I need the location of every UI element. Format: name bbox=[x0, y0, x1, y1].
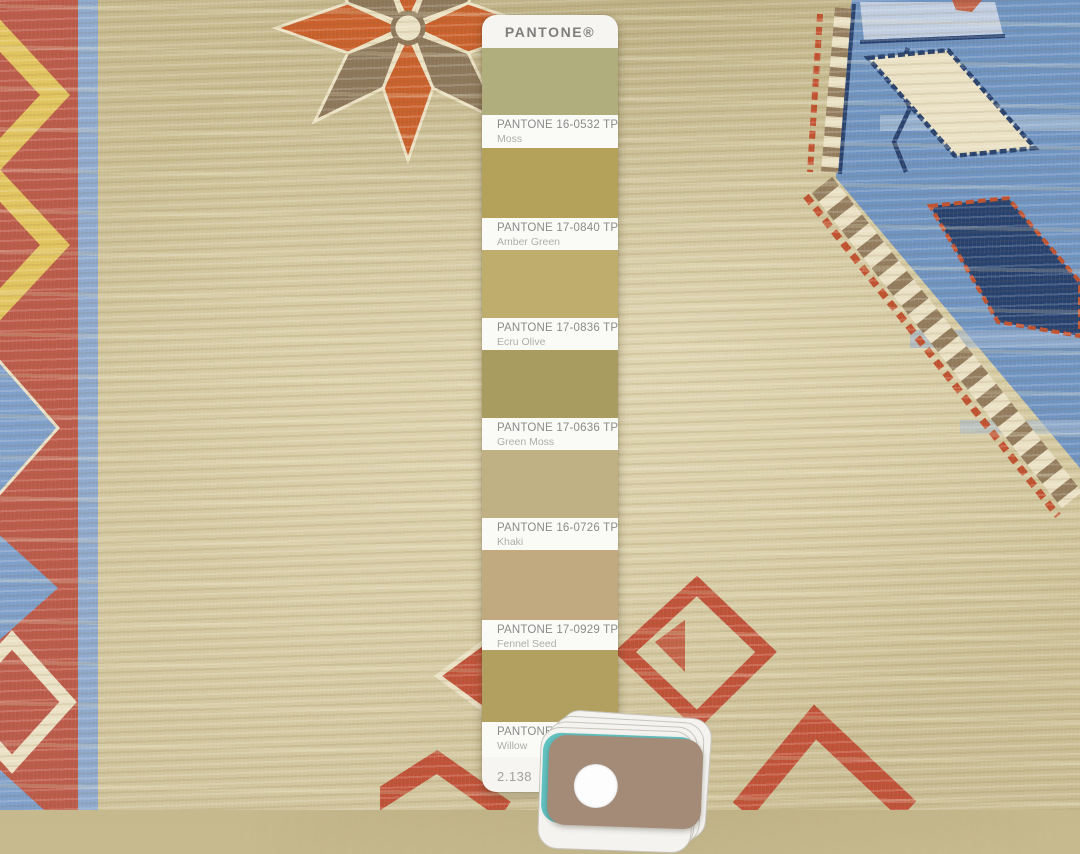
pantone-color-guide: PANTONE® PANTONE 16-0532 TPG Moss PANTON… bbox=[482, 15, 618, 792]
swatch-label: PANTONE 17-0836 TPG Ecru Olive bbox=[482, 318, 618, 350]
swatch-code: PANTONE 17-0836 TPG bbox=[497, 322, 618, 335]
swatch-label: PANTONE 16-0726 TPG Khaki bbox=[482, 518, 618, 550]
swatch-label: PANTONE 17-0840 TPG Amber Green bbox=[482, 218, 618, 250]
swatch-label: PANTONE 17-0636 TPG Green Moss bbox=[482, 418, 618, 450]
swatch-name: Ecru Olive bbox=[497, 336, 618, 348]
pale-band bbox=[860, 2, 1003, 40]
swatch-code: PANTONE 16-0726 TPG bbox=[497, 522, 618, 535]
swatch-name: Green Moss bbox=[497, 436, 618, 448]
red-diamond-outline bbox=[625, 586, 766, 720]
pantone-brand: PANTONE® bbox=[482, 15, 618, 48]
red-serrated-line bbox=[810, 14, 820, 172]
swatch-name: Amber Green bbox=[497, 236, 618, 248]
red-chevron bbox=[742, 722, 908, 810]
border-guard-stripe bbox=[78, 0, 98, 810]
rug-blue-medallion bbox=[760, 0, 1080, 580]
red-triangle bbox=[438, 640, 487, 712]
swatch-khaki bbox=[482, 450, 618, 518]
swatch-moss bbox=[482, 48, 618, 115]
swatch-ecru-olive bbox=[482, 250, 618, 318]
swatch-amber-green bbox=[482, 148, 618, 218]
swatch-code: PANTONE 16-0532 TPG bbox=[497, 119, 618, 132]
swatch-name: Khaki bbox=[497, 536, 618, 548]
deck-top-card bbox=[546, 734, 703, 829]
deck-rivet-hole bbox=[573, 763, 619, 809]
swatch-name: Fennel Seed bbox=[497, 638, 618, 650]
pantone-fan-deck bbox=[533, 714, 718, 810]
swatch-name: Moss bbox=[497, 133, 618, 145]
swatch-fennel-seed bbox=[482, 550, 618, 620]
swatch-code: PANTONE 17-0840 TPG bbox=[497, 222, 618, 235]
swatch-code: PANTONE 17-0929 TPG bbox=[497, 624, 618, 637]
star-center bbox=[393, 13, 423, 43]
swatch-code: PANTONE 17-0636 TPG bbox=[497, 422, 618, 435]
swatch-label: PANTONE 16-0532 TPG Moss bbox=[482, 115, 618, 148]
swatch-label: PANTONE 17-0929 TPG Fennel Seed bbox=[482, 620, 618, 650]
rug-left-border bbox=[0, 0, 100, 810]
swatch-green-moss bbox=[482, 350, 618, 418]
